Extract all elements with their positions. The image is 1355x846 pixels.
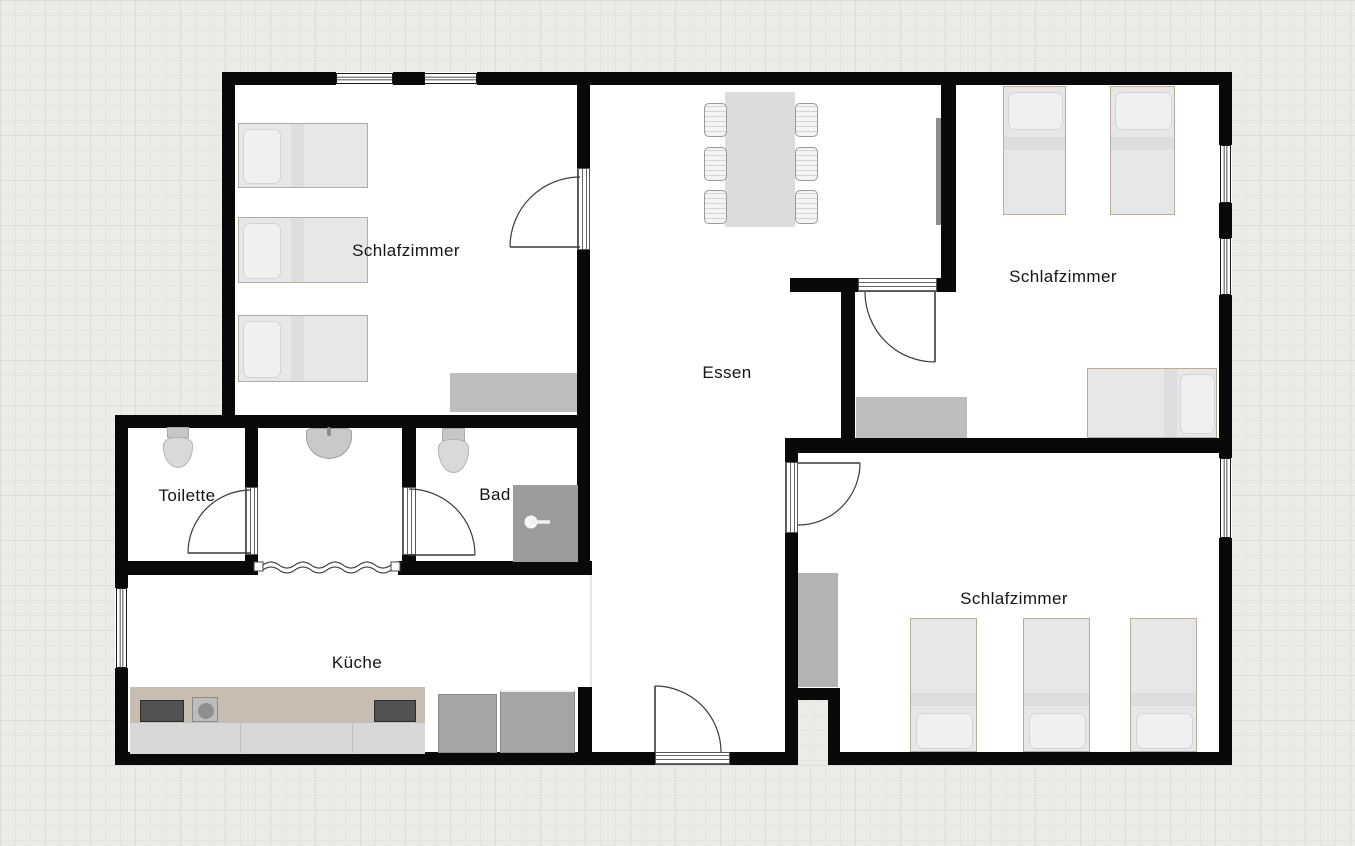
wall-segment (785, 453, 798, 462)
wall-segment (785, 438, 1232, 453)
dresser (856, 397, 967, 438)
chair (795, 103, 818, 137)
bed (1110, 86, 1175, 215)
bed (1003, 86, 1066, 215)
bed (1023, 618, 1090, 752)
room-label-bad: Bad (479, 485, 510, 505)
blanket-fold (1131, 693, 1196, 706)
wall-segment (937, 278, 956, 292)
room-label-kueche: Küche (332, 653, 382, 673)
appliance-box (438, 694, 497, 753)
pillow (243, 223, 281, 279)
window (116, 588, 127, 668)
window (1220, 238, 1231, 295)
cabinet-seam (240, 722, 241, 753)
toilet (163, 427, 193, 468)
wall-segment (577, 85, 590, 168)
wall-segment (785, 533, 798, 765)
pillow (1115, 92, 1172, 130)
pillow (1180, 374, 1215, 434)
toilet-bowl (438, 439, 469, 473)
room-label-schlafzimmer-1: Schlafzimmer (352, 241, 460, 261)
wall-segment (841, 292, 855, 438)
blanket-fold (291, 124, 304, 187)
wall-segment (398, 561, 592, 575)
blanket-fold (1164, 369, 1177, 437)
room-label-essen: Essen (702, 363, 751, 383)
wall-segment (798, 688, 840, 700)
blanket-fold (1004, 137, 1065, 150)
window (424, 73, 477, 84)
bed (238, 315, 368, 382)
dining-table (725, 92, 795, 227)
wall-segment (577, 250, 590, 575)
blanket-fold (1024, 693, 1089, 706)
wall-segment (790, 278, 858, 292)
wall-segment (402, 428, 416, 487)
blanket-fold (1111, 137, 1174, 150)
blanket-fold (291, 316, 304, 381)
window (1220, 145, 1231, 203)
room-label-schlafzimmer-2: Schlafzimmer (1009, 267, 1117, 287)
chair (704, 190, 727, 224)
sink-basin (198, 703, 214, 719)
wall-segment (941, 72, 956, 278)
wall-segment (828, 700, 840, 765)
toilet-bowl (163, 437, 193, 468)
chair (795, 190, 818, 224)
door-opening (655, 752, 730, 765)
room-label-toilette: Toilette (158, 486, 215, 506)
pillow (1136, 713, 1193, 749)
door-opening (785, 462, 798, 533)
wardrobe (798, 573, 838, 687)
pillow (243, 129, 281, 184)
wall-segment (477, 72, 1232, 85)
room-label-schlafzimmer-3: Schlafzimmer (960, 589, 1068, 609)
bed (910, 618, 977, 752)
wall-segment (115, 668, 128, 765)
wall-segment (222, 72, 336, 85)
pillow (916, 713, 973, 749)
door-opening (858, 278, 937, 292)
wall-tv (936, 118, 941, 225)
bed (1130, 618, 1197, 752)
door-opening (577, 168, 590, 250)
blanket-fold (911, 693, 976, 706)
wall-segment (578, 687, 592, 752)
wall-segment (1219, 203, 1232, 238)
refrigerator (500, 690, 575, 753)
wall-segment (115, 561, 258, 575)
chair (795, 147, 818, 181)
wall-segment (1219, 538, 1232, 765)
faucet (327, 427, 331, 436)
shower (513, 485, 578, 562)
oven (374, 700, 416, 722)
pillow (243, 321, 281, 378)
kitchen-cabinets (130, 722, 425, 754)
bed (1087, 368, 1217, 438)
chair (704, 147, 727, 181)
cabinet-seam (352, 722, 353, 753)
wall-segment (222, 72, 235, 428)
dresser (450, 373, 577, 412)
wall-segment (245, 428, 258, 487)
bed (238, 217, 368, 283)
exterior-notch (798, 700, 828, 765)
wall-segment (828, 752, 1232, 765)
door-opening (402, 487, 416, 555)
wall-segment (393, 72, 425, 85)
door-opening (245, 487, 258, 555)
toilet (438, 428, 469, 473)
chair (704, 103, 727, 137)
bed (238, 123, 368, 188)
pillow (1008, 92, 1063, 130)
kitchen-sink-unit (192, 697, 218, 722)
wall-segment (1219, 295, 1232, 458)
window (336, 73, 393, 84)
wall-segment (1219, 72, 1232, 145)
pillow (1029, 713, 1086, 749)
cooktop (140, 700, 184, 722)
window (1220, 458, 1231, 538)
blanket-fold (291, 218, 304, 282)
floor-plan: Schlafzimmer Essen Schlafzimmer Toilette… (0, 0, 1355, 846)
